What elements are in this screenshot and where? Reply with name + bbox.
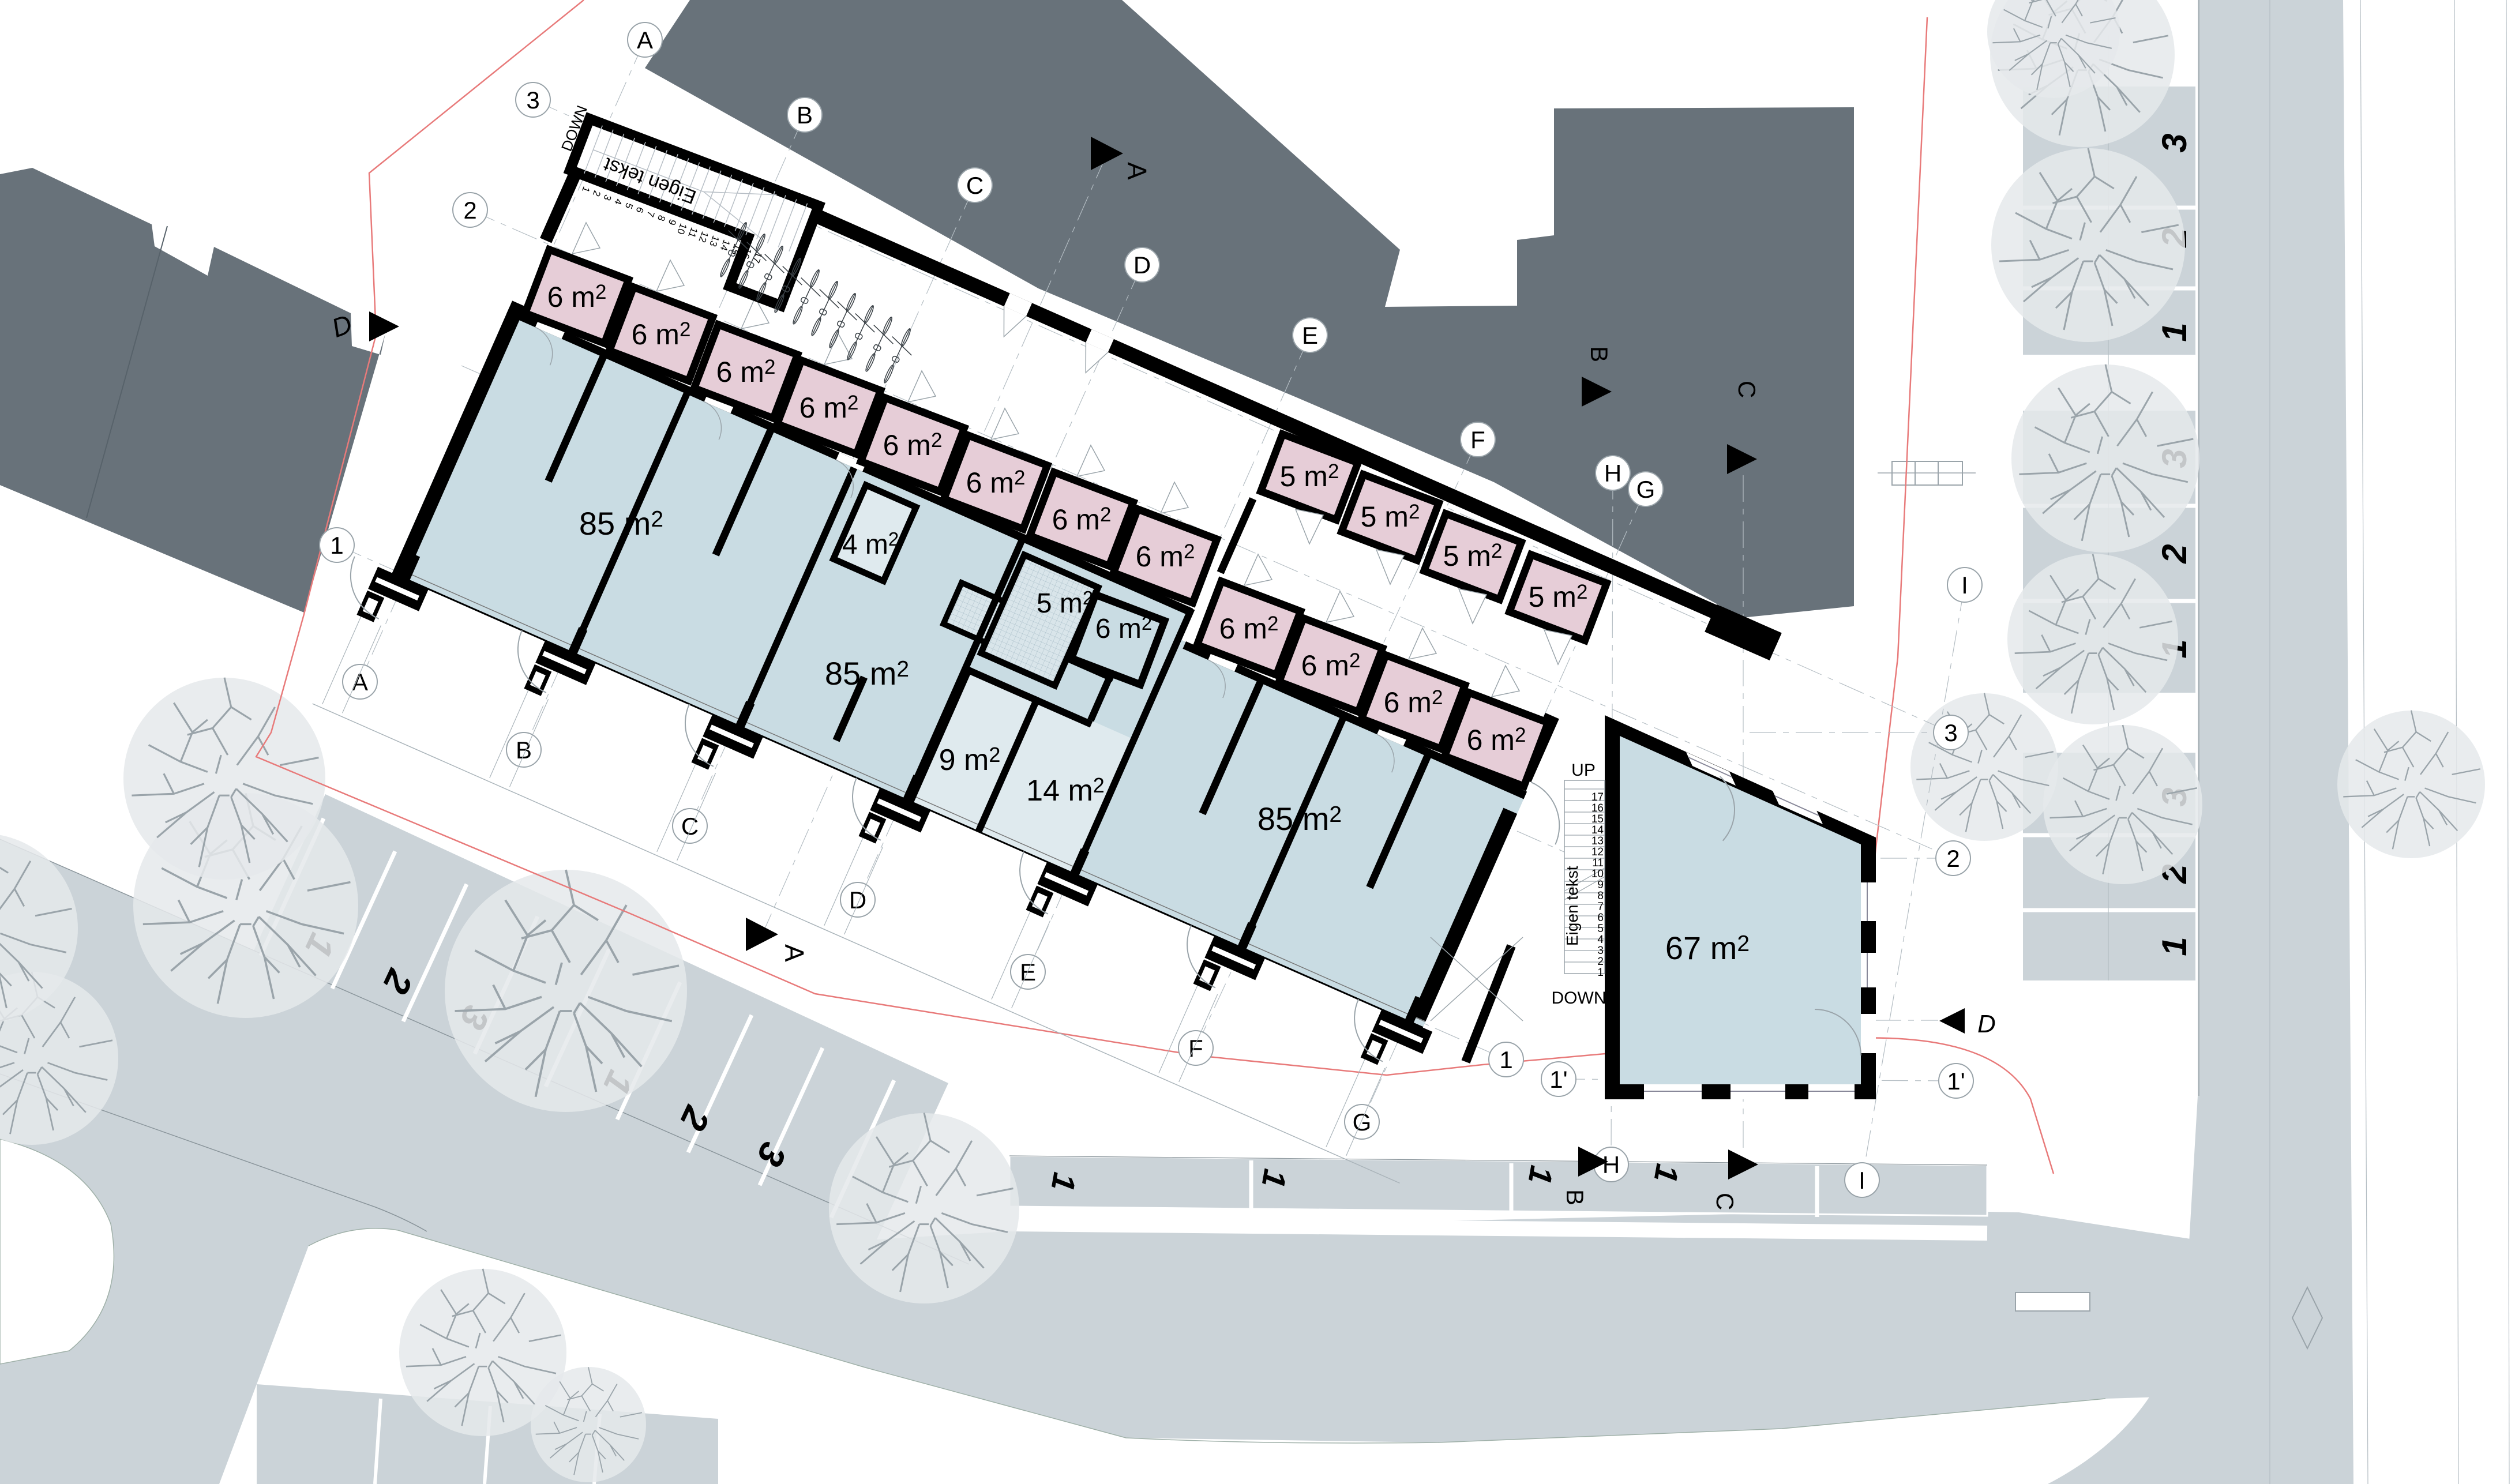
svg-text:8: 8 — [1597, 890, 1604, 902]
svg-text:85 m2: 85 m2 — [579, 505, 663, 542]
svg-text:3: 3 — [1944, 719, 1957, 746]
svg-text:1: 1 — [330, 532, 343, 559]
svg-text:1: 1 — [1499, 1046, 1512, 1073]
svg-text:F: F — [1470, 426, 1485, 453]
svg-text:13: 13 — [1591, 835, 1604, 847]
svg-text:B: B — [797, 102, 813, 129]
svg-text:14 m2: 14 m2 — [1026, 773, 1105, 807]
svg-text:1: 1 — [2155, 322, 2194, 341]
svg-text:I: I — [1859, 1167, 1865, 1194]
svg-text:3: 3 — [526, 87, 539, 114]
svg-text:UP: UP — [1571, 761, 1596, 780]
svg-text:16: 16 — [1591, 802, 1604, 814]
svg-text:12: 12 — [1591, 846, 1604, 858]
svg-text:1: 1 — [1597, 967, 1604, 979]
svg-text:3: 3 — [2155, 133, 2194, 152]
svg-text:17: 17 — [1591, 791, 1604, 803]
svg-text:A: A — [637, 27, 653, 54]
svg-text:A: A — [779, 944, 809, 962]
svg-text:D: D — [1133, 251, 1151, 279]
svg-text:C: C — [966, 172, 984, 199]
svg-text:A: A — [1122, 162, 1152, 180]
svg-text:1': 1' — [1549, 1066, 1567, 1093]
svg-text:B: B — [1561, 1189, 1589, 1205]
svg-text:G: G — [1636, 476, 1656, 503]
svg-text:1': 1' — [1947, 1068, 1965, 1095]
svg-text:DOWN: DOWN — [1552, 989, 1606, 1008]
svg-text:5: 5 — [1597, 923, 1604, 935]
svg-text:2: 2 — [1597, 956, 1604, 968]
svg-text:9: 9 — [1597, 879, 1604, 891]
svg-text:H: H — [1602, 1151, 1620, 1178]
svg-text:E: E — [1302, 322, 1318, 349]
svg-text:F: F — [1188, 1035, 1203, 1062]
svg-text:B: B — [516, 737, 532, 764]
svg-text:B: B — [1586, 346, 1613, 362]
svg-text:15: 15 — [1591, 813, 1604, 825]
svg-text:11: 11 — [1592, 857, 1604, 869]
svg-text:7: 7 — [1597, 901, 1604, 913]
svg-text:3: 3 — [1597, 945, 1604, 957]
svg-text:I: I — [1961, 572, 1968, 599]
svg-text:C: C — [1711, 1193, 1739, 1210]
svg-text:C: C — [1733, 381, 1760, 398]
svg-text:2: 2 — [2155, 544, 2194, 563]
svg-text:6: 6 — [1597, 912, 1604, 924]
svg-text:85 m2: 85 m2 — [1257, 801, 1342, 837]
svg-text:D: D — [1977, 1010, 1996, 1038]
svg-text:14: 14 — [1591, 824, 1604, 836]
svg-text:Eigen tekst: Eigen tekst — [1563, 866, 1581, 946]
svg-text:H: H — [1604, 460, 1621, 487]
svg-text:4: 4 — [1597, 934, 1604, 946]
svg-text:1: 1 — [2155, 937, 2194, 956]
svg-text:10: 10 — [1591, 868, 1604, 880]
svg-text:E: E — [1020, 959, 1036, 986]
svg-text:G: G — [1353, 1109, 1372, 1136]
svg-text:67 m2: 67 m2 — [1665, 930, 1750, 966]
svg-text:85 m2: 85 m2 — [825, 655, 909, 692]
svg-text:2: 2 — [1946, 845, 1960, 872]
svg-text:2: 2 — [463, 197, 476, 224]
